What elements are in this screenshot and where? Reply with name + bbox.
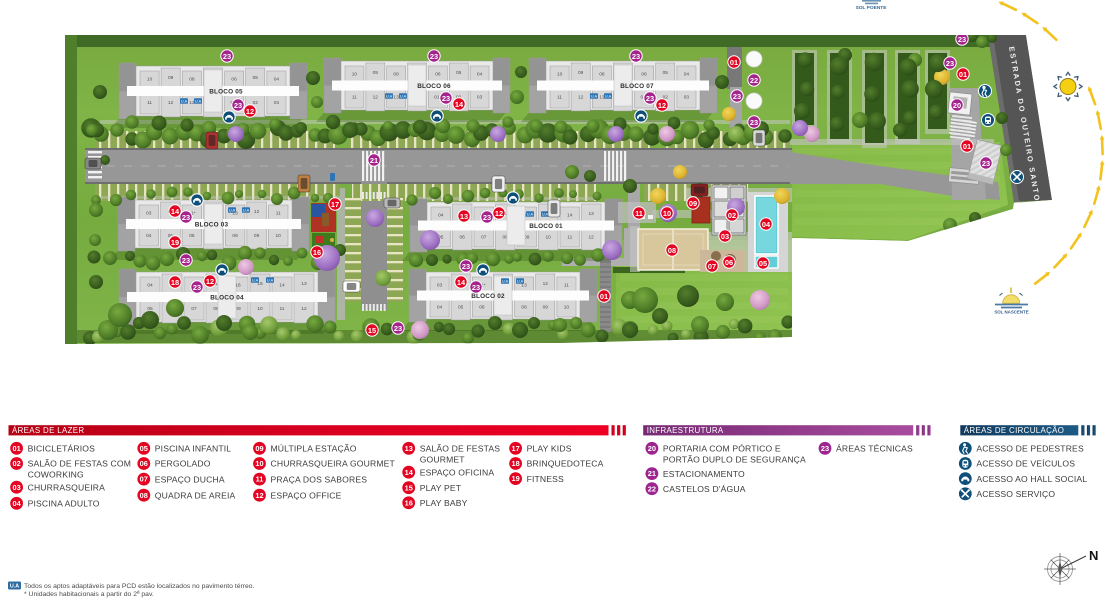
svg-text:01: 01 [963,142,971,151]
svg-text:ACESSO SERVIÇO: ACESSO SERVIÇO [976,489,1055,499]
svg-text:05: 05 [663,70,669,76]
svg-text:10: 10 [557,72,563,78]
svg-text:08: 08 [521,305,527,311]
svg-text:06: 06 [435,72,441,78]
svg-text:12: 12 [658,101,666,110]
svg-text:04: 04 [147,283,153,289]
svg-text:U.A: U.A [243,209,250,213]
svg-text:GOURMET: GOURMET [420,455,466,465]
svg-text:CHURRASQUEIRA GOURMET: CHURRASQUEIRA GOURMET [271,459,396,469]
svg-text:PRAÇA DOS SABORES: PRAÇA DOS SABORES [271,474,368,484]
svg-text:11: 11 [557,95,562,101]
svg-text:N: N [1089,548,1098,563]
svg-text:01: 01 [730,58,738,67]
svg-text:COWORKING: COWORKING [28,470,84,480]
svg-text:13: 13 [393,95,399,101]
svg-text:ESTACIONAMENTO: ESTACIONAMENTO [663,469,745,479]
svg-text:03: 03 [721,232,729,241]
svg-text:PORTÃO DUPLO DE SEGURANÇA: PORTÃO DUPLO DE SEGURANÇA [663,455,806,465]
svg-text:INFRAESTRUTURA: INFRAESTRUTURA [647,426,724,435]
svg-text:09: 09 [373,70,379,76]
svg-text:11: 11 [276,211,281,217]
svg-text:FITNESS: FITNESS [527,474,564,484]
svg-text:23: 23 [234,101,242,110]
svg-text:10: 10 [255,459,263,468]
svg-text:12: 12 [255,491,263,500]
svg-text:CHURRASQUEIRA: CHURRASQUEIRA [28,482,106,492]
svg-text:U.A: U.A [591,95,598,99]
svg-text:12: 12 [589,235,595,241]
svg-text:10: 10 [352,72,358,78]
svg-text:23: 23 [483,213,491,222]
svg-text:U.A: U.A [502,280,509,284]
svg-text:10: 10 [147,77,153,83]
svg-text:U.A: U.A [542,213,549,217]
svg-text:18: 18 [511,459,519,468]
svg-text:23: 23 [193,283,201,292]
svg-text:BLOCO 03: BLOCO 03 [195,222,229,229]
svg-text:04: 04 [437,305,443,311]
svg-text:12: 12 [495,209,503,218]
svg-text:04: 04 [274,77,280,83]
svg-text:23: 23 [430,52,438,61]
svg-text:08: 08 [668,246,676,255]
svg-text:12: 12 [206,277,214,286]
svg-text:* Unidades habitacionais a par: * Unidades habitacionais a partir do 2ª … [24,591,154,598]
svg-text:23: 23 [182,213,190,222]
svg-text:U.A: U.A [605,95,612,99]
svg-text:08: 08 [599,72,605,78]
svg-text:14: 14 [567,213,573,219]
svg-text:SALÃO DE FESTAS: SALÃO DE FESTAS [420,444,501,454]
svg-text:06: 06 [140,459,148,468]
svg-text:02: 02 [728,211,736,220]
svg-text:11: 11 [564,283,569,289]
svg-text:17: 17 [511,444,519,453]
svg-text:12: 12 [246,107,254,116]
svg-text:10: 10 [257,306,263,312]
svg-text:CASTELOS D'ÁGUA: CASTELOS D'ÁGUA [663,484,746,494]
svg-text:10: 10 [276,233,282,239]
svg-text:20: 20 [648,444,656,453]
svg-text:09: 09 [168,75,174,81]
svg-text:ACESSO DE VEÍCULOS: ACESSO DE VEÍCULOS [976,459,1075,469]
svg-text:23: 23 [223,52,231,61]
svg-text:08: 08 [393,72,399,78]
svg-text:PISCINA ADULTO: PISCINA ADULTO [28,499,100,509]
svg-text:13: 13 [301,281,307,287]
svg-text:08: 08 [140,491,148,500]
svg-text:PERGOLADO: PERGOLADO [155,459,211,469]
svg-text:23: 23 [462,262,470,271]
svg-text:22: 22 [750,76,758,85]
svg-text:22: 22 [648,484,656,493]
svg-text:13: 13 [589,211,595,217]
svg-text:23: 23 [821,444,829,453]
svg-text:03: 03 [12,483,20,492]
svg-text:05: 05 [759,259,767,268]
svg-text:04: 04 [762,220,771,229]
svg-text:04: 04 [477,72,483,78]
svg-text:18: 18 [171,278,179,287]
svg-text:23: 23 [946,59,954,68]
svg-text:MÚLTIPLA ESTAÇÃO: MÚLTIPLA ESTAÇÃO [271,444,357,454]
svg-text:BLOCO 05: BLOCO 05 [209,89,243,96]
svg-text:06: 06 [479,305,485,311]
svg-text:23: 23 [442,94,450,103]
svg-text:05: 05 [253,75,259,81]
svg-text:BLOCO 06: BLOCO 06 [417,83,451,90]
svg-text:ACESSO AO HALL SOCIAL: ACESSO AO HALL SOCIAL [976,474,1087,484]
svg-text:ÁREAS TÉCNICAS: ÁREAS TÉCNICAS [836,444,913,454]
svg-text:09: 09 [578,70,584,76]
svg-text:BICICLETÁRIOS: BICICLETÁRIOS [28,444,95,454]
svg-text:02: 02 [12,459,20,468]
svg-text:12: 12 [254,209,260,215]
svg-text:12: 12 [578,95,584,101]
svg-text:14: 14 [405,468,414,477]
svg-text:14: 14 [457,278,466,287]
svg-text:23: 23 [646,94,654,103]
svg-text:06: 06 [460,235,466,241]
svg-text:05: 05 [140,444,148,453]
svg-text:09: 09 [689,199,697,208]
svg-text:11: 11 [567,235,572,241]
svg-text:U.A: U.A [229,209,236,213]
svg-text:07: 07 [191,306,197,312]
svg-text:23: 23 [750,118,758,127]
svg-text:03: 03 [684,95,690,101]
svg-text:16: 16 [405,498,413,507]
svg-text:12: 12 [543,281,549,287]
svg-text:11: 11 [352,95,357,101]
svg-text:03: 03 [437,283,443,289]
svg-text:03: 03 [274,100,280,106]
svg-text:06: 06 [641,72,647,78]
svg-text:08: 08 [232,233,238,239]
svg-text:11: 11 [635,209,643,218]
svg-text:U.A: U.A [267,279,274,283]
svg-text:23: 23 [982,159,990,168]
svg-text:23: 23 [958,35,966,44]
svg-text:ACESSO DE PEDESTRES: ACESSO DE PEDESTRES [976,444,1084,454]
svg-text:10: 10 [663,209,671,218]
svg-text:07: 07 [140,475,148,484]
svg-text:19: 19 [171,238,179,247]
svg-text:ESPAÇO DUCHA: ESPAÇO DUCHA [155,474,225,484]
svg-text:BLOCO 04: BLOCO 04 [210,295,244,302]
svg-text:QUADRA DE AREIA: QUADRA DE AREIA [155,490,236,500]
svg-text:04: 04 [12,499,21,508]
svg-text:09: 09 [255,444,263,453]
svg-text:ÁREAS DE CIRCULAÇÃO: ÁREAS DE CIRCULAÇÃO [964,426,1064,435]
svg-text:SALÃO DE FESTAS COM: SALÃO DE FESTAS COM [28,459,131,469]
svg-text:BLOCO 07: BLOCO 07 [620,83,654,90]
svg-text:PLAY BABY: PLAY BABY [420,498,468,508]
svg-text:U.A: U.A [181,100,188,104]
svg-text:03: 03 [477,95,483,101]
svg-text:05: 05 [458,305,464,311]
svg-text:PORTARIA COM PÓRTICO E: PORTARIA COM PÓRTICO E [663,444,781,454]
svg-text:BLOCO 02: BLOCO 02 [471,293,505,300]
svg-text:21: 21 [370,156,378,165]
svg-text:19: 19 [511,474,519,483]
svg-text:11: 11 [280,306,285,312]
svg-text:04: 04 [146,233,152,239]
svg-text:ESPAÇO OFICINA: ESPAÇO OFICINA [420,467,495,477]
svg-text:21: 21 [648,469,656,478]
svg-text:01: 01 [12,444,20,453]
svg-text:PISCINA INFANTIL: PISCINA INFANTIL [155,444,231,454]
svg-text:U.A: U.A [195,100,202,104]
svg-text:U.A: U.A [527,213,534,217]
svg-text:14: 14 [455,100,464,109]
svg-text:BLOCO 01: BLOCO 01 [529,223,563,230]
svg-text:09: 09 [254,233,260,239]
svg-text:20: 20 [953,101,961,110]
svg-text:U.A: U.A [400,95,407,99]
svg-text:05: 05 [456,70,462,76]
svg-text:14: 14 [279,283,285,289]
svg-text:U.A: U.A [517,280,524,284]
svg-text:ÁREAS DE LAZER: ÁREAS DE LAZER [12,426,84,435]
svg-text:10: 10 [546,235,552,241]
svg-text:SOL NASCENTE: SOL NASCENTE [994,310,1028,315]
svg-text:13: 13 [405,444,413,453]
svg-text:ESPAÇO OFFICE: ESPAÇO OFFICE [271,490,342,500]
svg-text:01: 01 [959,70,967,79]
svg-text:PLAY KIDS: PLAY KIDS [527,444,572,454]
svg-text:11: 11 [147,100,152,106]
svg-text:15: 15 [368,326,376,335]
svg-text:15: 15 [405,483,413,492]
svg-text:SOL POENTE: SOL POENTE [856,5,888,11]
svg-text:06: 06 [725,258,733,267]
svg-text:13: 13 [460,212,468,221]
svg-text:04: 04 [438,213,444,219]
svg-text:12: 12 [168,100,174,106]
svg-text:23: 23 [394,324,402,333]
svg-text:U.A: U.A [252,279,259,283]
svg-text:04: 04 [684,72,690,78]
svg-text:23: 23 [733,92,741,101]
svg-text:06: 06 [189,233,195,239]
svg-text:07: 07 [481,235,487,241]
svg-text:14: 14 [171,207,180,216]
svg-text:U.A: U.A [10,584,19,590]
svg-text:U.A: U.A [386,95,393,99]
svg-text:08: 08 [189,77,195,83]
svg-text:23: 23 [182,256,190,265]
svg-text:12: 12 [301,306,307,312]
svg-text:Todos os aptos adaptáveis para: Todos os aptos adaptáveis para PCD estão… [24,583,255,590]
svg-text:11: 11 [256,475,264,484]
svg-text:06: 06 [231,77,237,83]
svg-text:16: 16 [313,248,321,257]
svg-text:07: 07 [708,262,716,271]
svg-text:09: 09 [543,305,549,311]
svg-text:01: 01 [600,292,608,301]
svg-text:03: 03 [146,211,152,217]
svg-text:BRINQUEDOTECA: BRINQUEDOTECA [527,459,604,469]
svg-text:PLAY PET: PLAY PET [420,483,462,493]
svg-text:23: 23 [632,52,640,61]
svg-text:23: 23 [472,283,480,292]
svg-text:17: 17 [331,200,339,209]
svg-text:12: 12 [373,95,379,101]
svg-text:10: 10 [564,305,570,311]
svg-text:02: 02 [253,100,259,106]
